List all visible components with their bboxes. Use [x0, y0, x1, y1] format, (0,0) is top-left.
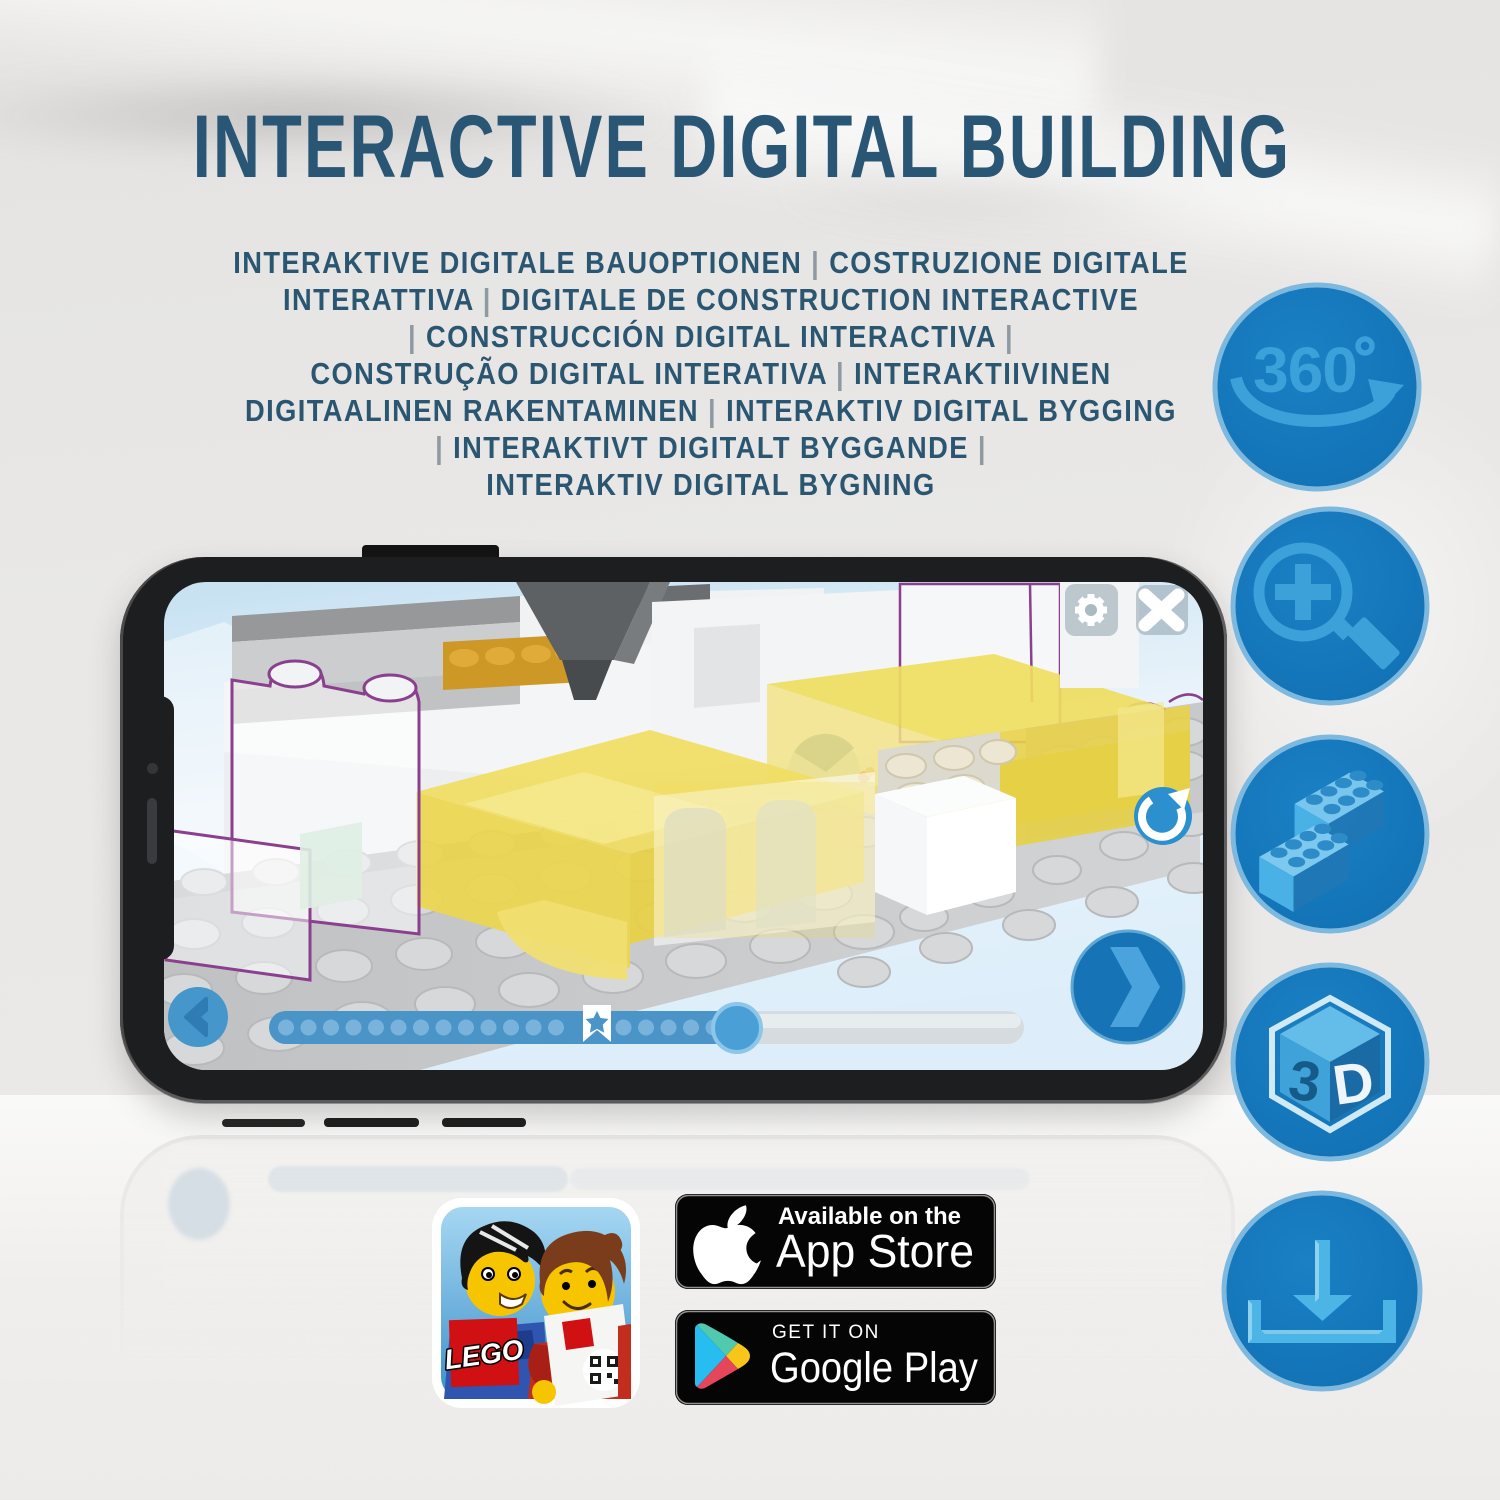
svg-text:GET IT ON: GET IT ON	[772, 1322, 880, 1343]
svg-text:360: 360	[1253, 334, 1357, 406]
svg-text:App Store: App Store	[776, 1225, 974, 1277]
svg-text:Google Play: Google Play	[770, 1344, 978, 1392]
